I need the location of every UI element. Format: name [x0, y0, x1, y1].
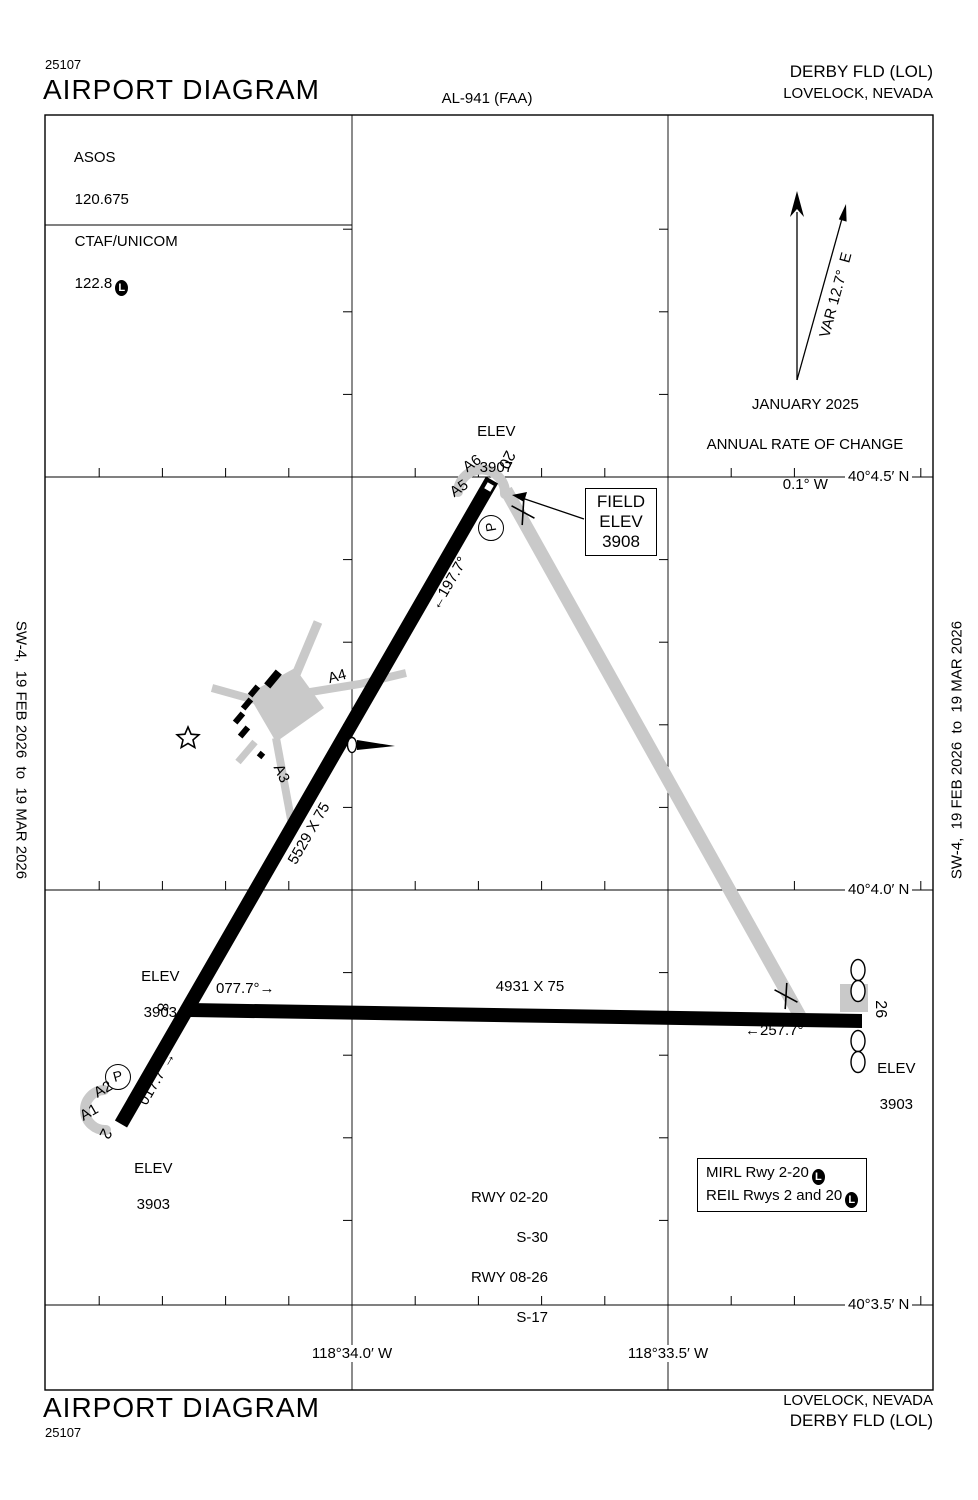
field-label: FIELD	[597, 492, 645, 511]
chart-number-top: 25107	[45, 58, 81, 73]
taxiway-stub-south	[238, 742, 255, 762]
page-title: AIRPORT DIAGRAM	[43, 74, 320, 106]
apron	[248, 668, 324, 742]
airport-city-top: LOVELOCK, NEVADA	[783, 85, 933, 102]
asos-label: ASOS	[74, 149, 116, 166]
lon-label-2: 118°33.5′ W	[625, 1345, 711, 1362]
elev-value: 3903	[880, 1096, 913, 1113]
mirl-note: MIRL Rwy 2-20	[706, 1164, 809, 1181]
elev-label: ELEV	[141, 968, 179, 985]
closed-runway	[506, 490, 800, 1016]
rwy-data-line: RWY 02-20	[471, 1189, 548, 1206]
parking-label: P	[479, 520, 502, 533]
rwy26-elev-block: ELEV 3903	[860, 1042, 915, 1132]
airport-name-bottom: DERBY FLD (LOL)	[790, 1411, 933, 1431]
lighting-l-icon: L	[812, 1169, 825, 1185]
parking-label: P	[111, 1064, 126, 1088]
elev-label: ELEV	[477, 423, 515, 440]
variation-date: JANUARY 2025	[752, 396, 859, 413]
lighting-l-icon: L	[115, 280, 128, 296]
asos-freq: 120.675	[75, 191, 129, 208]
page-title-bottom: AIRPORT DIAGRAM	[43, 1392, 320, 1424]
rwy08-number: 8	[152, 1003, 170, 1012]
chart-number-bottom: 25107	[45, 1426, 81, 1441]
comm-box: ASOS 120.675 CTAF/UNICOM 122.8L	[58, 126, 178, 317]
lat-label-1: 40°4.5′ N	[845, 468, 912, 485]
ctaf-freq: 122.8	[75, 275, 113, 292]
variation-date-block: JANUARY 2025 ANNUAL RATE OF CHANGE 0.1° …	[691, 375, 904, 515]
elev-value: 3903	[137, 1196, 170, 1213]
runway-data-block: RWY 02-20 S-30 RWY 08-26 S-17	[428, 1168, 548, 1348]
rwy-data-line: S-30	[516, 1229, 548, 1246]
ctaf-label: CTAF/UNICOM	[75, 233, 178, 250]
rwy08-heading-label: 077.7°→	[216, 980, 275, 997]
elev-label: ELEV	[134, 1160, 172, 1177]
airport-name-top: DERBY FLD (LOL)	[790, 62, 933, 82]
reil-note: REIL Rwys 2 and 20	[706, 1187, 842, 1204]
elev-label: ELEV	[599, 512, 642, 531]
airport-city-bottom: LOVELOCK, NEVADA	[783, 1392, 933, 1409]
rwy02-elev-block: ELEV 3903	[117, 1142, 172, 1232]
lighting-l-icon: L	[845, 1192, 858, 1208]
parking-circle-icon: P	[478, 515, 504, 541]
windsock-icon	[348, 738, 396, 753]
field-elev-box: FIELD ELEV 3908	[585, 488, 657, 556]
rwy26-number: 26	[871, 1000, 889, 1018]
rate-of-change-label: ANNUAL RATE OF CHANGE	[707, 436, 904, 453]
beacon-star-icon	[177, 727, 199, 748]
procedure-id: AL-941 (FAA)	[442, 90, 533, 107]
rwy-data-line: RWY 08-26	[471, 1269, 548, 1286]
rwy08-elev-block: ELEV 3903	[124, 950, 179, 1040]
variation-arrow-icon	[839, 204, 847, 222]
lat-label-2: 40°4.0′ N	[845, 881, 912, 898]
rate-of-change-value: 0.1° W	[783, 476, 828, 493]
edition-strip-right: SW-4, 19 FEB 2026 to 19 MAR 2026	[948, 621, 965, 879]
lon-label-1: 118°34.0′ W	[309, 1345, 395, 1362]
rwy-data-line: S-17	[516, 1309, 548, 1326]
rwy26-heading-label: ←257.7°	[745, 1022, 804, 1039]
elev-label: ELEV	[877, 1060, 915, 1077]
airport-diagram-page: 25107 AIRPORT DIAGRAM AL-941 (FAA) DERBY…	[0, 0, 978, 1500]
lat-label-3: 40°3.5′ N	[845, 1296, 912, 1313]
lighting-box: MIRL Rwy 2-20L REIL Rwys 2 and 20L	[697, 1158, 867, 1212]
field-elev-value: 3908	[602, 532, 640, 551]
edition-strip-left: SW-4, 19 FEB 2026 to 19 MAR 2026	[12, 621, 29, 879]
rwy0826-dimensions: 4931 X 75	[496, 978, 564, 995]
